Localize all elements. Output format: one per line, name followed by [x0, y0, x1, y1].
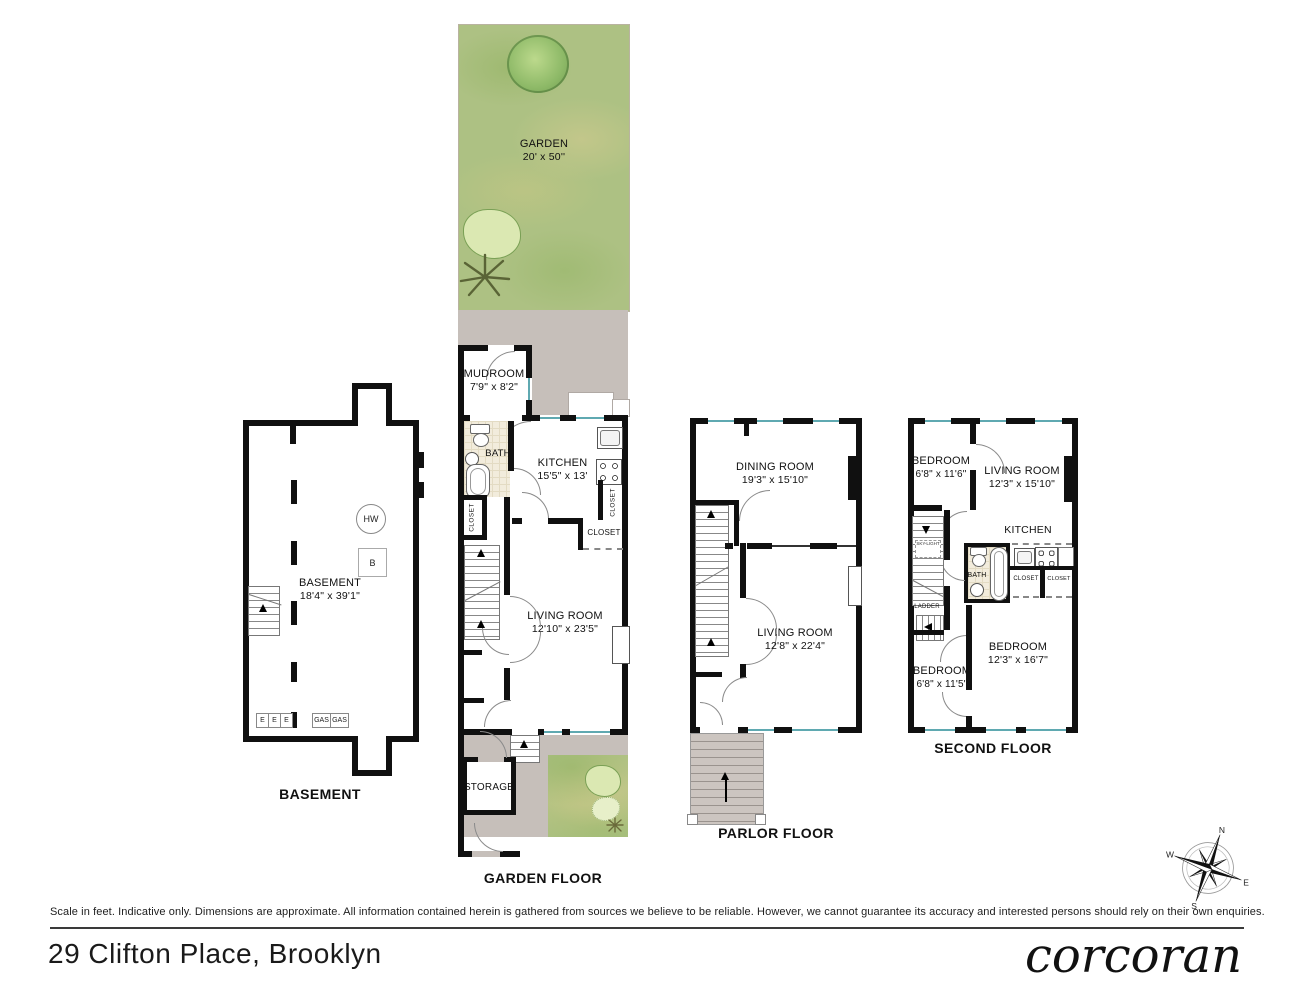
stair-up-arrow-icon [707, 510, 715, 518]
pocket-door [837, 545, 856, 547]
room-dims: 12'8" x 22'4" [735, 640, 855, 654]
wall [740, 543, 746, 598]
stair-up-arrow-icon [259, 604, 267, 612]
closet-left: CLOSET [463, 499, 482, 535]
pocket-door [772, 545, 810, 547]
room-dims: 7'9" x 8'2" [459, 381, 529, 395]
pier [291, 480, 297, 504]
closet-right: CLOSET [602, 484, 624, 520]
bush-icon [585, 765, 621, 797]
window [925, 727, 955, 733]
wall [966, 716, 972, 728]
garden-area: GARDEN 20' x 50'' [458, 24, 630, 312]
opening [358, 736, 386, 748]
boiler: B [358, 548, 387, 577]
closet-label: CLOSET [610, 488, 617, 516]
sink-icon [1014, 548, 1035, 567]
compass-n-label: N [1219, 825, 1225, 835]
ladder-label: LADDER [911, 604, 943, 612]
mudroom-label: MUDROOM 7'9" x 8'2" [459, 367, 529, 395]
bifold-door-dashed [1046, 596, 1072, 598]
compass-e-label: E [1243, 877, 1249, 887]
basement-room-label: BASEMENT 18'4" x 39'1" [260, 576, 400, 604]
wall [696, 672, 722, 677]
compass-w-label: W [1166, 850, 1174, 860]
room-dims: 19'3" x 15'10" [715, 474, 835, 488]
dining-room-label: DINING ROOM 19'3" x 15'10" [715, 460, 835, 488]
skylight-text: SKY-LIGHT [916, 541, 939, 546]
sink-icon [970, 583, 984, 597]
wall [413, 452, 424, 468]
door-arc [474, 823, 503, 852]
wall [912, 505, 942, 511]
closet-mid-label: CLOSET [582, 528, 626, 538]
garden-dims: 20' x 50'' [484, 151, 604, 165]
sparkle-plant-icon [606, 817, 624, 833]
room-dims: 18'4" x 39'1" [260, 590, 400, 604]
wall [504, 668, 510, 700]
window [792, 727, 838, 733]
wall [912, 630, 944, 635]
wall [970, 418, 976, 444]
garden-name: GARDEN [484, 137, 604, 151]
parlor-floor-title: PARLOR FLOOR [706, 825, 846, 841]
gas-label: GAS [314, 717, 329, 724]
stair-down-arrow-icon [922, 526, 930, 534]
tree-icon [507, 35, 569, 93]
wall [548, 518, 582, 524]
wall [504, 497, 510, 545]
compass-rose-icon: N E S W [1164, 824, 1252, 912]
steps-up-arrow-icon [520, 740, 528, 748]
opening [358, 414, 386, 426]
bay-window [848, 566, 862, 606]
window [708, 418, 734, 424]
newel-post [687, 814, 698, 825]
fireplace [848, 456, 858, 500]
room-name: MUDROOM [459, 367, 529, 381]
newel-post [755, 814, 766, 825]
window [757, 418, 783, 424]
wall [482, 495, 487, 540]
closet1-label: CLOSET [1012, 576, 1040, 584]
pier [291, 601, 297, 625]
palm-plant-icon [459, 253, 511, 299]
wall [725, 543, 733, 549]
stair-up-arrow-icon [477, 549, 485, 557]
toilet-icon [972, 554, 986, 567]
closet-door-dashed [583, 548, 623, 550]
door-opening [472, 851, 500, 857]
living-room-label: LIVING ROOM 12'8" x 22'4" [735, 626, 855, 654]
room-name: BASEMENT [260, 576, 400, 590]
wall [944, 586, 950, 630]
deck-step [568, 392, 614, 417]
wall [744, 418, 749, 436]
window [925, 418, 951, 424]
window [540, 415, 560, 421]
meter-label: E [272, 717, 277, 724]
wall [810, 543, 837, 549]
hw-label: HW [364, 514, 379, 524]
garden-floor-title: GARDEN FLOOR [473, 870, 613, 886]
meter-label: E [284, 717, 289, 724]
stoop-up-arrow-icon [721, 772, 729, 780]
toilet-icon [473, 433, 489, 447]
kitchen-label: KITCHEN [988, 524, 1068, 538]
fireplace [1064, 456, 1074, 502]
room-dims: 12'3" x 16'7" [958, 654, 1078, 668]
corcoran-logo: corcoran [1025, 928, 1242, 984]
bedroom2-label: BEDROOM 6'8" x 11'5" [911, 664, 973, 691]
meter-label: E [260, 717, 265, 724]
sink-icon [597, 427, 623, 449]
pier [291, 541, 297, 565]
wall [740, 664, 746, 678]
garden-patch [548, 755, 628, 837]
wall [504, 545, 510, 595]
bedroom3-label: BEDROOM 12'3" x 16'7" [958, 640, 1078, 668]
room-name: BEDROOM [958, 640, 1078, 654]
wall [747, 543, 772, 549]
garden-label: GARDEN 20' x 50'' [484, 137, 604, 165]
wall [944, 510, 950, 560]
electric-meter: E [280, 713, 293, 728]
arrow-stem [725, 780, 727, 802]
gas-meter: GAS [312, 713, 331, 728]
window [986, 727, 1016, 733]
window [980, 418, 1006, 424]
floorplan-sheet: GARDEN 20' x 50'' MUDROOM 7'9" x 8'2" BA… [0, 0, 1294, 1000]
basement-title: BASEMENT [250, 786, 390, 802]
bush-icon [463, 209, 521, 259]
pier [291, 662, 297, 682]
skylight-label: SKY-LIGHT [915, 540, 941, 558]
wall [464, 698, 484, 703]
counter [1058, 547, 1074, 568]
storage-label: STORAGE [463, 781, 515, 794]
door-opening [488, 345, 514, 351]
wall [734, 500, 739, 546]
window [1026, 727, 1066, 733]
wall [512, 518, 522, 524]
disclaimer-text: Scale in feet. Indicative only. Dimensio… [50, 906, 1250, 918]
second-floor-title: SECOND FLOOR [923, 740, 1063, 756]
closet2-label: CLOSET [1045, 576, 1073, 583]
bath-label: BATH [964, 571, 990, 580]
bifold-door-dashed [1012, 543, 1072, 545]
stair-up-arrow-icon [707, 638, 715, 646]
bay-window [612, 626, 630, 664]
hot-water-heater: HW [356, 504, 386, 534]
bathtub-icon [990, 547, 1008, 601]
property-address: 29 Clifton Place, Brooklyn [48, 938, 382, 970]
bathtub-icon [466, 464, 490, 499]
closet-label: CLOSET [469, 503, 476, 531]
room-name: LIVING ROOM [735, 626, 855, 640]
window [576, 415, 604, 421]
pier [290, 420, 296, 444]
bifold-door-dashed [1013, 596, 1039, 598]
room-name: DINING ROOM [715, 460, 835, 474]
window [1035, 418, 1062, 424]
gas-label: GAS [332, 717, 347, 724]
wall [464, 650, 482, 655]
wall [464, 535, 484, 540]
room-dims: 6'8" x 11'5" [911, 678, 973, 691]
window [813, 418, 839, 424]
wall [413, 482, 424, 498]
stair-up-arrow-icon [477, 620, 485, 628]
gas-meter: GAS [330, 713, 349, 728]
boiler-label: B [369, 558, 375, 568]
